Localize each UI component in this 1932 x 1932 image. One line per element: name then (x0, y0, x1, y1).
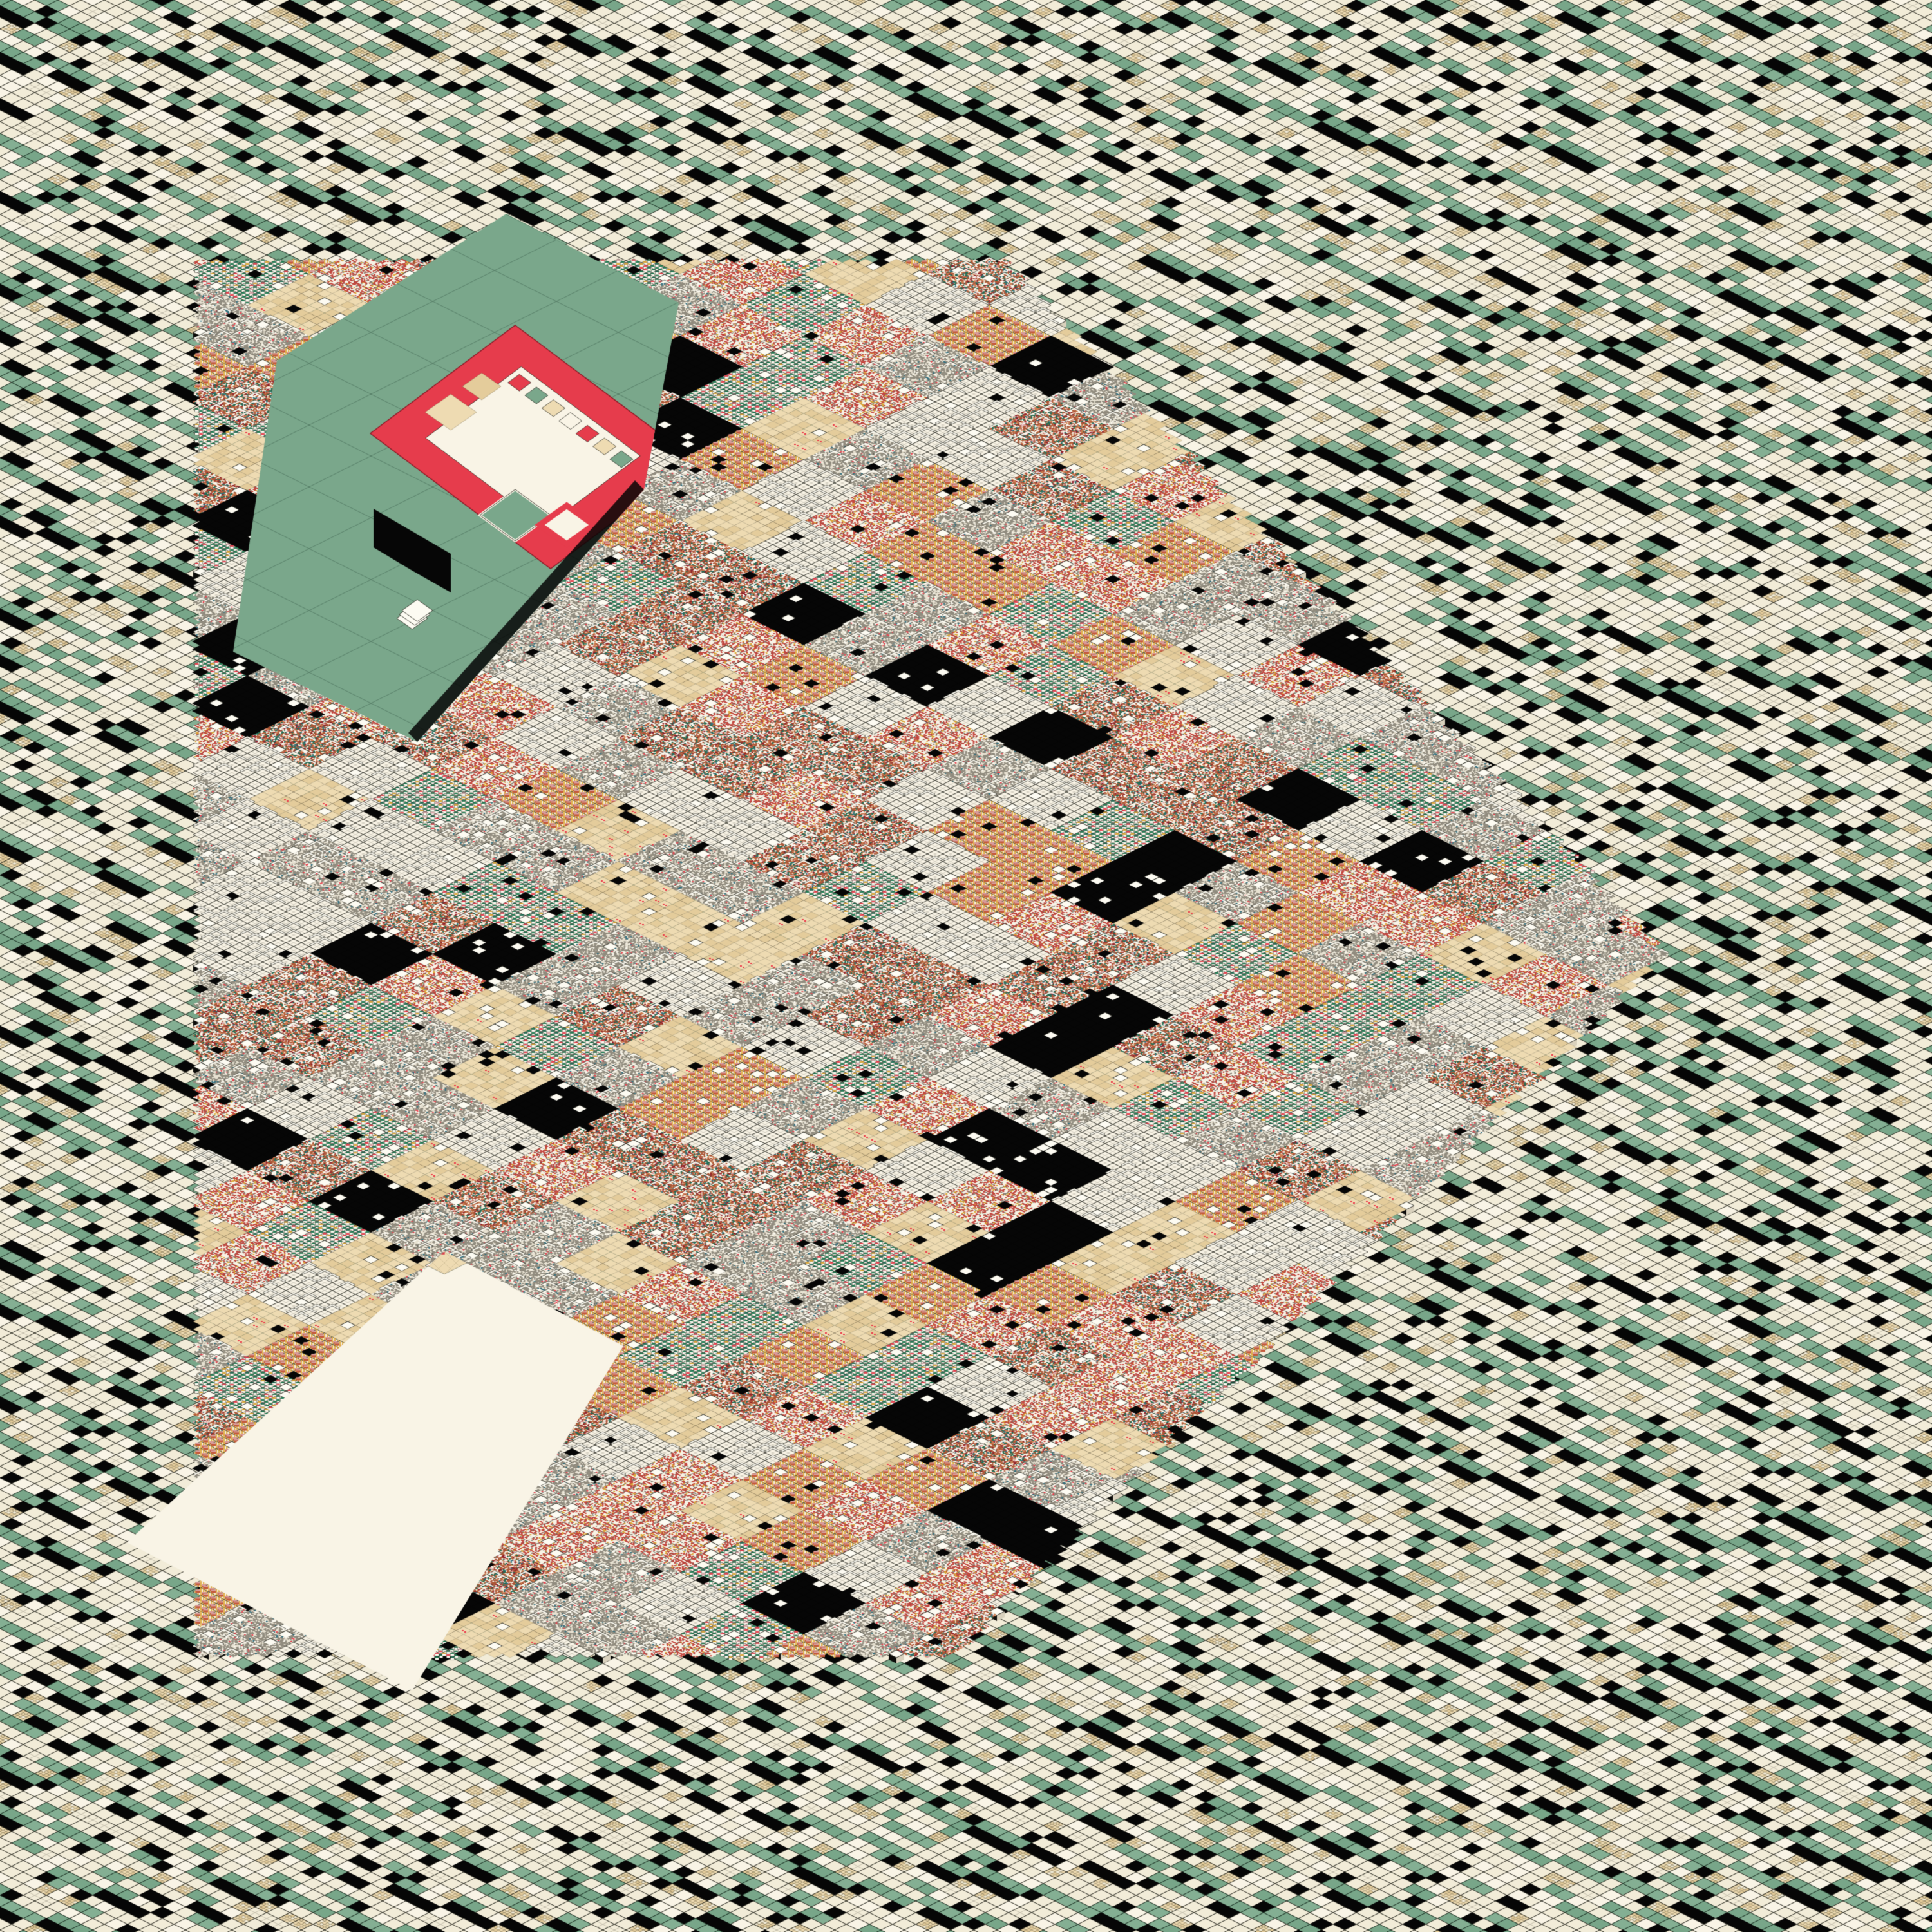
generative-artwork (0, 0, 1932, 1932)
artwork-canvas (0, 0, 1932, 1932)
